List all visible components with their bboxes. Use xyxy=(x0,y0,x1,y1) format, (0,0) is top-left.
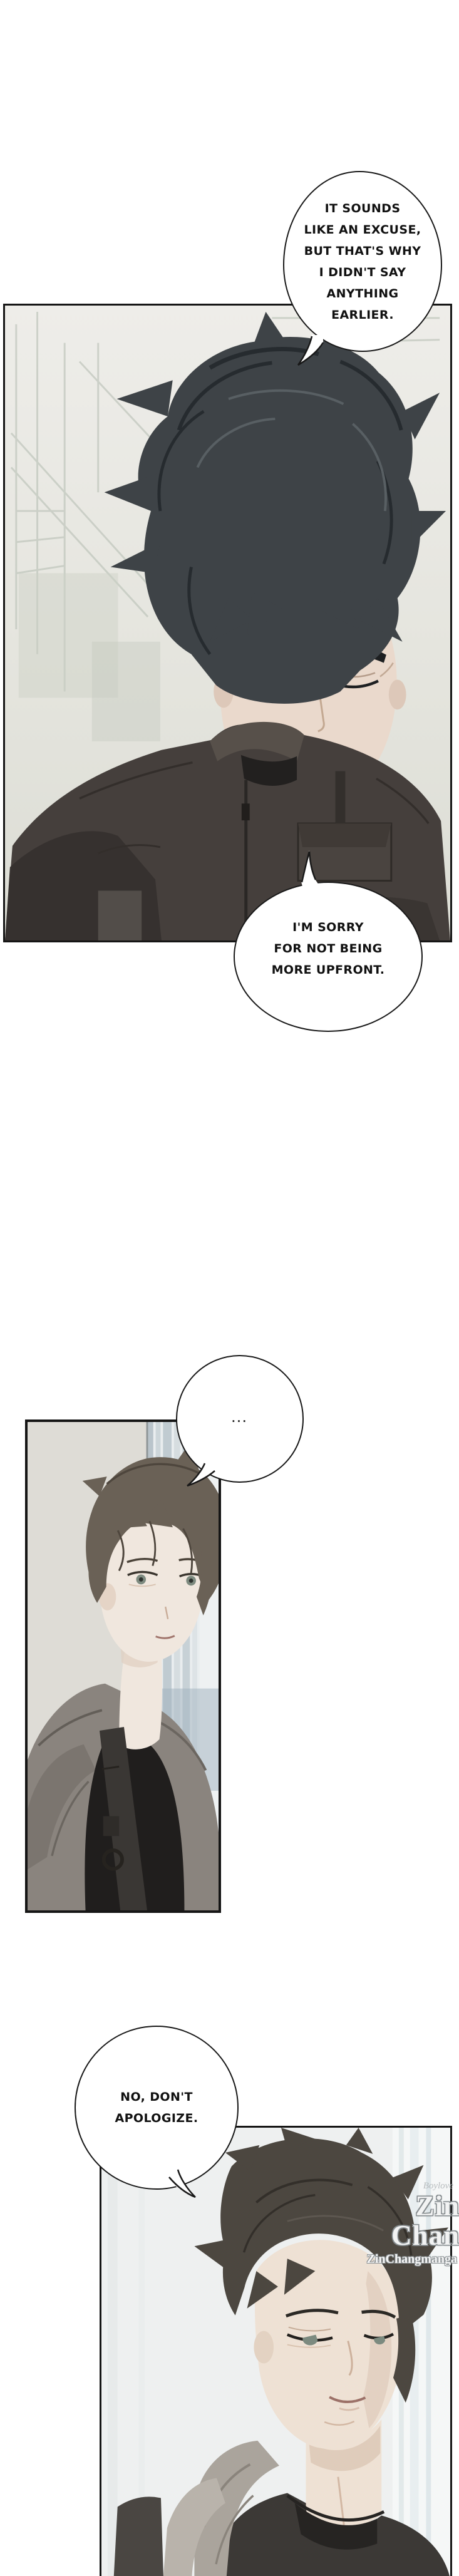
speech-bubble-3: NO, DON'T APOLOGIZE. xyxy=(75,2026,239,2190)
speech-bubble-1-line: IT SOUNDS xyxy=(325,198,401,219)
speech-bubble-ellipsis-text: ... xyxy=(232,1413,248,1425)
speech-bubble-1-tail xyxy=(294,335,326,366)
speech-bubble-2-tail xyxy=(299,850,324,887)
speech-bubble-3-line: APOLOGIZE. xyxy=(115,2108,198,2129)
speech-bubble-3-tail xyxy=(168,2168,198,2198)
comic-panel-3 xyxy=(100,2126,452,2576)
speech-bubble-2-line: MORE UPFRONT. xyxy=(272,959,385,981)
man-bowing-head-illustration xyxy=(5,306,450,940)
speech-bubble-1-line: ANYTHING xyxy=(327,283,399,304)
speech-bubble-2-line: I'M SORRY xyxy=(292,917,364,938)
young-man-window-illustration xyxy=(28,1422,219,1910)
speech-bubble-1-line: LIKE AN EXCUSE, xyxy=(304,219,421,240)
speech-bubble-ellipsis-tail xyxy=(185,1462,216,1487)
comic-page: { "speech": { "b1": {"lines": ["IT SOUND… xyxy=(0,0,459,2576)
speech-bubble-1: IT SOUNDS LIKE AN EXCUSE, BUT THAT'S WHY… xyxy=(283,171,442,352)
speech-bubble-1-line: I DIDN'T SAY xyxy=(319,262,406,283)
comic-panel-1 xyxy=(3,304,452,942)
speech-bubble-1-line: BUT THAT'S WHY xyxy=(304,240,421,262)
speech-bubble-2-line: FOR NOT BEING xyxy=(274,938,382,959)
speech-bubble-1-line: EARLIER. xyxy=(331,304,394,326)
smiling-man-illustration xyxy=(101,2128,450,2576)
speech-bubble-2: I'M SORRY FOR NOT BEING MORE UPFRONT. xyxy=(234,882,423,1032)
comic-panel-2 xyxy=(25,1419,221,1913)
speech-bubble-3-line: NO, DON'T xyxy=(120,2086,193,2108)
